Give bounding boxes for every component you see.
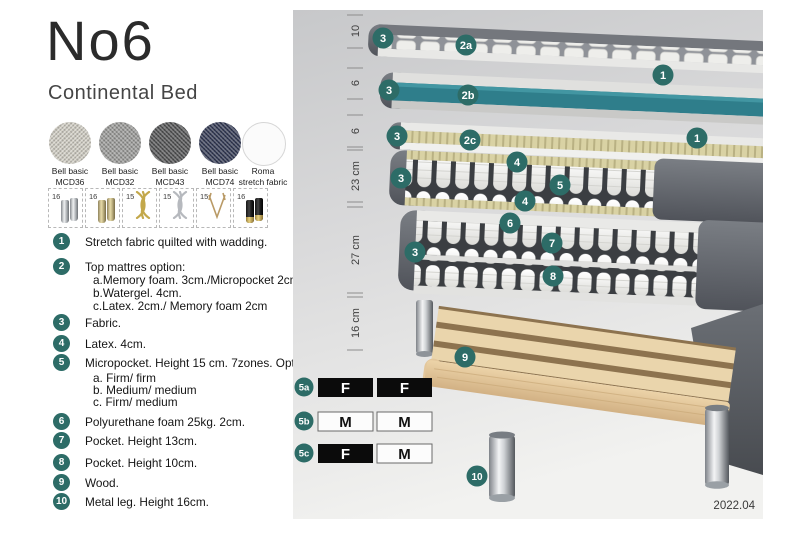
- leg-option-hairpin: 15: [196, 188, 231, 228]
- fabric-swatch-roma: [242, 122, 286, 166]
- leg-option-cylinder-silver: 16: [48, 188, 83, 228]
- legend-item-5: 5 Micropocket. Height 15 cm. 7zones. Opt…: [53, 354, 314, 371]
- callout-2c: 2c: [460, 130, 481, 151]
- fabric-swatch-mcd36: [49, 122, 91, 164]
- callout-9: 9: [455, 347, 476, 368]
- legend-number-badge: 10: [53, 493, 70, 510]
- infographic-page: No6 Continental Bed Bell basicMCD36 Bell…: [0, 0, 800, 533]
- legend-subitem: c.Latex. 2cm./ Memory foam 2cm: [93, 299, 267, 313]
- callout-8: 8: [543, 266, 564, 287]
- callout-3-micropocket: 3: [391, 168, 412, 189]
- legend-number-badge: 8: [53, 454, 70, 471]
- legend-text: Stretch fabric quilted with wadding.: [85, 235, 267, 249]
- firmness-label: 5a: [299, 383, 310, 394]
- callout-2a: 2a: [456, 35, 477, 56]
- legend-number-badge: 5: [53, 354, 70, 371]
- callout-label: 2a: [460, 40, 473, 52]
- measurement-label: 6: [350, 128, 362, 134]
- legend-number-badge: 3: [53, 314, 70, 331]
- cylinder-gold-leg-icon: [97, 197, 117, 224]
- callout-label: 2c: [464, 135, 476, 147]
- callout-5: 5: [550, 175, 571, 196]
- callout-3-base: 3: [405, 242, 426, 263]
- measurement-label: 10: [350, 25, 362, 37]
- callout-10: 10: [467, 466, 488, 487]
- callout-3-watergel: 3: [379, 80, 400, 101]
- callout-1-lower: 1: [687, 128, 708, 149]
- legend-item-10: 10 Metal leg. Height 16cm.: [53, 493, 209, 510]
- page-subtitle: Continental Bed: [48, 82, 198, 105]
- legend-item-6: 6 Polyurethane foam 25kg. 2cm.: [53, 413, 245, 430]
- legend-item-4: 4 Latex. 4cm.: [53, 335, 146, 352]
- metal-leg-back: [416, 300, 433, 357]
- callout-1-upper: 1: [653, 65, 674, 86]
- legend-item-1: 1 Stretch fabric quilted with wadding.: [53, 233, 267, 250]
- callout-label: 3: [412, 247, 418, 259]
- measurement-label: 6: [350, 80, 362, 86]
- measurement-label: 16 cm: [350, 308, 362, 338]
- callout-3-topper: 3: [373, 28, 394, 49]
- legend-number-badge: 2: [53, 258, 70, 275]
- callout-label: 6: [507, 218, 513, 230]
- legend-number-badge: 1: [53, 233, 70, 250]
- legend-number-badge: 7: [53, 432, 70, 449]
- leg-option-black-gold: 16: [233, 188, 268, 228]
- callout-label: 3: [386, 85, 392, 97]
- firmness-cell: M: [339, 414, 352, 431]
- legend-number-badge: 6: [53, 413, 70, 430]
- legend-item-9: 9 Wood.: [53, 474, 119, 491]
- firmness-label: 5b: [298, 417, 309, 428]
- callout-4-top: 4: [507, 152, 528, 173]
- callout-label: 4: [522, 196, 529, 208]
- callout-7: 7: [542, 233, 563, 254]
- legend-text: Pocket. Height 10cm.: [85, 456, 197, 470]
- callout-label: 10: [471, 472, 483, 483]
- callout-label: 3: [398, 173, 404, 185]
- leg-option-twist-gold: 15: [122, 188, 157, 228]
- legend-subitem: a.Memory foam. 3cm./Micropocket 2cm: [93, 273, 300, 287]
- twist-gold-leg-icon: [132, 191, 154, 224]
- legend-text: Metal leg. Height 16cm.: [85, 495, 209, 509]
- metal-leg-front: [489, 432, 515, 503]
- legend-item-7: 7 Pocket. Height 13cm.: [53, 432, 197, 449]
- callout-label: 5: [557, 180, 563, 192]
- legend-subitem: b.Watergel. 4cm.: [93, 286, 182, 300]
- callout-2b: 2b: [458, 85, 479, 106]
- callout-label: 1: [660, 70, 666, 82]
- legend-text: Latex. 4cm.: [85, 337, 146, 351]
- twist-silver-leg-icon: [169, 191, 191, 224]
- fabric-swatch-mcd43: [149, 122, 191, 164]
- page-title: No6: [46, 12, 155, 71]
- measurement-label: 23 cm: [350, 161, 362, 191]
- legend-subitem: c. Firm/ medium: [93, 395, 178, 409]
- cylinder-silver-leg-icon: [60, 197, 80, 224]
- firmness-cell: F: [400, 380, 409, 397]
- firmness-cell: F: [341, 380, 350, 397]
- callout-label: 3: [394, 131, 400, 143]
- firmness-label: 5c: [299, 449, 310, 460]
- firmness-cell: F: [341, 446, 350, 463]
- legend-text: Wood.: [85, 476, 119, 490]
- firmness-cell: M: [398, 414, 411, 431]
- leg-option-twist-silver: 15: [159, 188, 194, 228]
- callout-label: 7: [549, 238, 555, 250]
- callout-label: 3: [380, 33, 386, 45]
- legend-text: Top mattres option:: [85, 260, 185, 274]
- legend-text: Polyurethane foam 25kg. 2cm.: [85, 415, 245, 429]
- leg-option-cylinder-gold: 16: [85, 188, 120, 228]
- callout-label: 9: [462, 352, 468, 364]
- legend-text: Fabric.: [85, 316, 121, 330]
- fabric-swatch-mcd32: [99, 122, 141, 164]
- legend-item-3: 3 Fabric.: [53, 314, 121, 331]
- callout-label: 1: [694, 133, 700, 145]
- callout-label: 8: [550, 271, 556, 283]
- version-label: 2022.04: [713, 500, 755, 512]
- callout-6: 6: [500, 213, 521, 234]
- legend-number-badge: 9: [53, 474, 70, 491]
- legend-number-badge: 4: [53, 335, 70, 352]
- fabric-swatch-mcd74: [199, 122, 241, 164]
- callout-label: 4: [514, 157, 521, 169]
- callout-3-latex: 3: [387, 126, 408, 147]
- callout-4-bottom: 4: [515, 191, 536, 212]
- measurement-label: 27 cm: [350, 235, 362, 265]
- legend-text: Pocket. Height 13cm.: [85, 434, 197, 448]
- hairpin-leg-icon: [206, 191, 228, 224]
- black-gold-leg-icon: [245, 197, 265, 224]
- callout-label: 2b: [462, 90, 475, 102]
- firmness-cell: M: [398, 446, 411, 463]
- metal-leg-right: [705, 405, 729, 489]
- bed-exploded-diagram: 10 6 6 23 cm 27 cm 16 cm: [293, 10, 763, 519]
- legend-text: Micropocket. Height 15 cm. 7zones. Optio…: [85, 356, 314, 370]
- legend-item-8: 8 Pocket. Height 10cm.: [53, 454, 197, 471]
- swatch-label: Romastretch fabric: [234, 166, 292, 187]
